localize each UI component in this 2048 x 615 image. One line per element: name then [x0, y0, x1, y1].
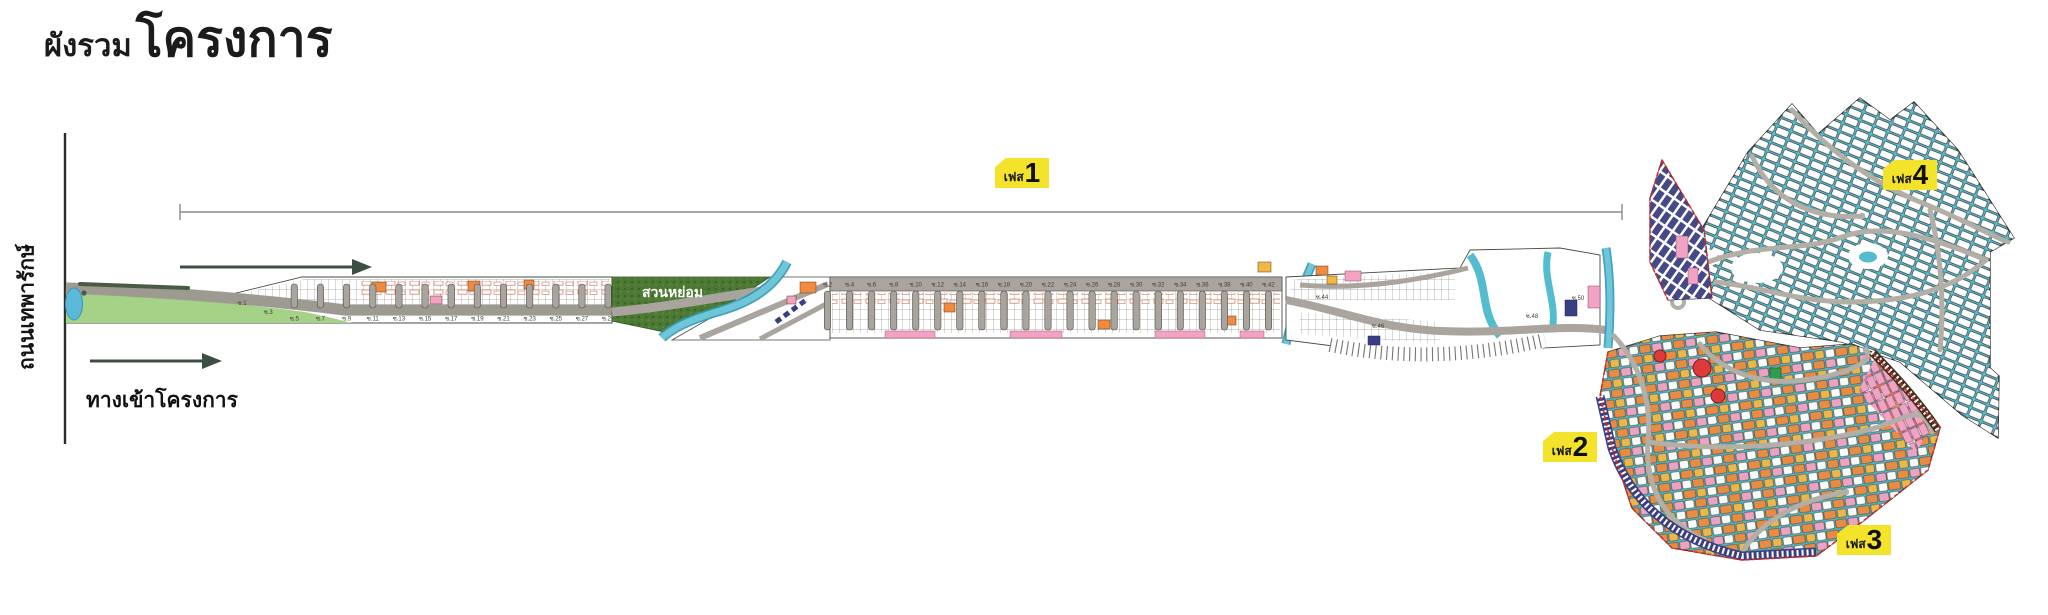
soi-label: ซ.3: [264, 309, 274, 316]
soi-label: ซ.36: [1196, 282, 1209, 289]
soi-label: ซ.50: [1572, 295, 1585, 302]
phase-1-number: 1: [1025, 160, 1041, 187]
soi-label: ซ.15: [419, 316, 432, 323]
cluster-west-wedge: [1650, 160, 1712, 300]
soi-label: ซ.2: [823, 282, 833, 289]
soi-label: ซ.6: [867, 282, 877, 289]
site-plan-drawing: ซ.1ซ.3ซ.5ซ.7ซ.9ซ.11ซ.13ซ.15ซ.17ซ.19ซ.21ซ…: [0, 0, 2048, 615]
soi-label: ซ.4: [845, 282, 855, 289]
soi-label: ซ.14: [954, 282, 967, 289]
soi-label: ซ.9: [342, 316, 352, 323]
direction-arrow-icon: [180, 259, 372, 275]
soi-label: ซ.48: [1526, 313, 1539, 320]
entrance-arrow-icon: [90, 353, 222, 369]
entrance-pond: [66, 288, 83, 320]
phase-1-label: เฟส 1: [995, 158, 1049, 188]
soi-label: ซ.27: [576, 316, 589, 323]
soi-label: ซ.16: [976, 282, 989, 289]
soi-label: ซ.40: [1240, 282, 1253, 289]
soi-label: ซ.7: [316, 316, 326, 323]
soi-label: ซ.46: [1372, 323, 1385, 330]
strip-segment-2: ซ.2ซ.4ซ.6ซ.8ซ.10ซ.12ซ.14ซ.16ซ.18ซ.20ซ.22…: [823, 277, 1282, 338]
soi-label: ซ.5: [290, 316, 300, 323]
soi-label: ซ.42: [1262, 282, 1275, 289]
park-label: สวนหย่อม: [642, 284, 703, 300]
soi-label: ซ.8: [889, 282, 899, 289]
soi-label: ซ.11: [367, 316, 380, 323]
soi-label: ซ.22: [1042, 282, 1055, 289]
phase-2-number: 2: [1573, 434, 1589, 461]
entrance-island: [81, 290, 86, 295]
phase-3-prefix: เฟส: [1846, 535, 1866, 554]
soi-label: ซ.44: [1316, 294, 1329, 301]
soi-label: ซ.38: [1218, 282, 1231, 289]
soi-label: ซ.24: [1064, 282, 1077, 289]
soi-label: ซ.26: [1086, 282, 1099, 289]
soi-label: ซ.13: [393, 316, 406, 323]
soi-label: ซ.25: [550, 316, 563, 323]
soi-label: ซ.34: [1174, 282, 1187, 289]
soi-label: ซ.1: [237, 300, 247, 307]
phase-2-prefix: เฟส: [1552, 442, 1572, 461]
soi-label: ซ.20: [1020, 282, 1033, 289]
phase-4-prefix: เฟส: [1892, 170, 1912, 189]
soi-label: ซ.18: [998, 282, 1011, 289]
soi-label: ซ.32: [1152, 282, 1165, 289]
master-plan-page: ผังรวม โครงการ ถนนเทพารักษ์ ทางเข้าโครงก…: [0, 0, 2048, 615]
soi-label: ซ.30: [1130, 282, 1143, 289]
soi-label: ซ.19: [471, 316, 484, 323]
phase-3-number: 3: [1867, 527, 1883, 554]
soi-label: ซ.12: [932, 282, 945, 289]
soi-label: ซ.10: [909, 282, 922, 289]
phase-2-label: เฟส 2: [1543, 432, 1597, 462]
phase1-dimension-line: [180, 204, 1622, 220]
phase-1-prefix: เฟส: [1004, 168, 1024, 187]
soi-label: ซ.21: [497, 316, 510, 323]
phase-4-number: 4: [1913, 162, 1929, 189]
phase-3-label: เฟส 3: [1837, 525, 1891, 555]
phase-4-label: เฟส 4: [1883, 160, 1937, 190]
strip-segment-1: ซ.1ซ.3ซ.5ซ.7ซ.9ซ.11ซ.13ซ.15ซ.17ซ.19ซ.21ซ…: [66, 277, 615, 323]
soi-label: ซ.23: [523, 316, 536, 323]
soi-label: ซ.17: [445, 316, 458, 323]
soi-label: ซ.28: [1108, 282, 1121, 289]
